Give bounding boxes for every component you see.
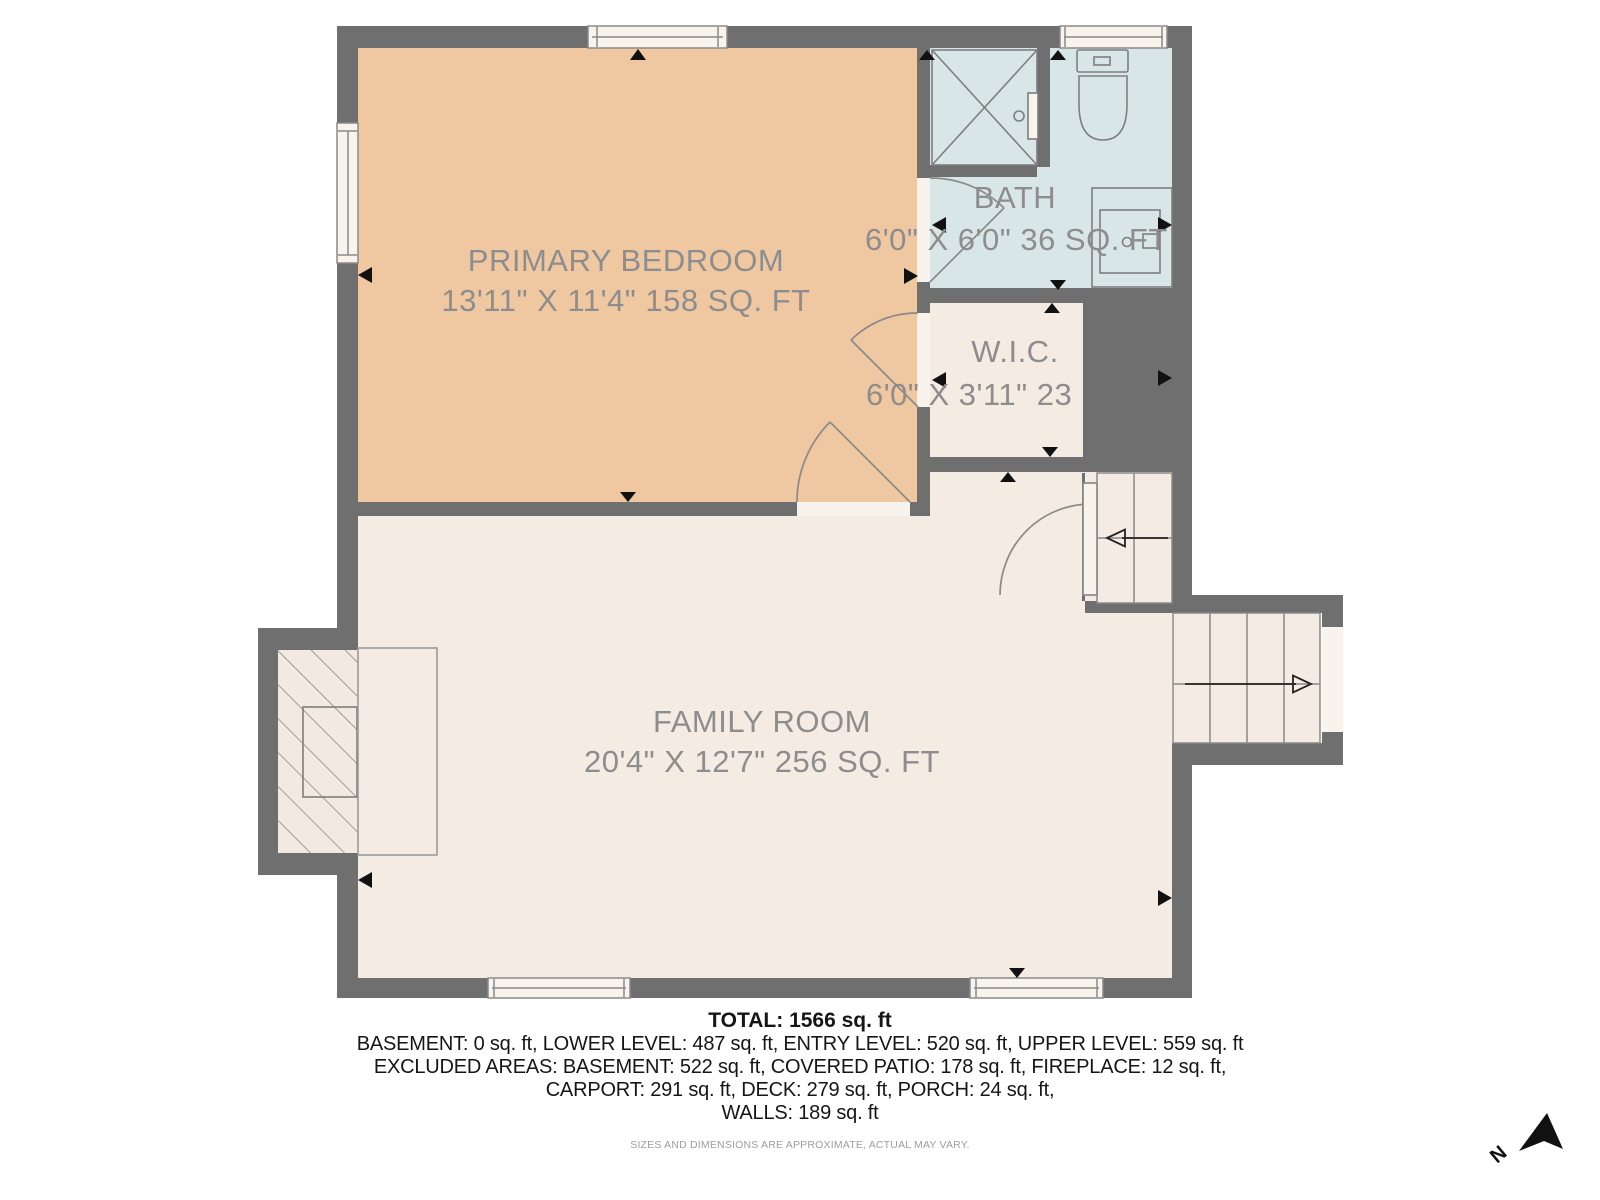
wall-fireplace [258,853,358,875]
area-summary: TOTAL: 1566 sq. ft BASEMENT: 0 sq. ft, L… [0,1008,1600,1151]
wall-lower-stairs-top [1192,595,1343,613]
excluded-area-3: WALLS: 189 sq. ft [0,1102,1600,1125]
bath-label: BATH [915,180,1115,216]
wall-fireplace [258,628,358,650]
wall-block-right-of-wic [1083,288,1192,472]
wall-left [337,48,358,123]
wall-shower-divider [1037,48,1050,167]
stairs-up-icon [1097,473,1172,603]
wall-right [1172,743,1192,998]
stairs-exit-opening [1322,627,1343,732]
family-room-dims: 20'4" X 12'7" 256 SQ. FT [512,744,1012,780]
wic-dims: 6'0" X 3'11" 23 SQ. FT [866,377,1083,413]
levels-area: BASEMENT: 0 sq. ft, LOWER LEVEL: 487 sq.… [0,1033,1600,1056]
vestibule-door-leaf [1083,483,1097,595]
shower-door [1028,93,1038,139]
wic-label: W.I.C. [915,334,1115,370]
wall-lower-stairs-right [1322,595,1343,627]
disclaimer-text: SIZES AND DIMENSIONS ARE APPROXIMATE, AC… [0,1139,1600,1151]
wall-left [337,855,358,998]
wall-wic-bottom [917,457,1083,472]
excluded-area-2: CARPORT: 291 sq. ft, DECK: 279 sq. ft, P… [0,1079,1600,1102]
bath-dims: 6'0" X 6'0" 36 SQ. FT [865,222,1165,258]
wall-shower-bottom [917,165,1037,177]
family-room-label: FAMILY ROOM [562,704,962,740]
primary-bedroom-label: PRIMARY BEDROOM [376,243,876,279]
wall-left [337,263,358,648]
wall-bath-bottom [917,288,1083,303]
fireplace-icon [278,648,437,855]
wall-fireplace [258,628,278,875]
bedroom-door-opening [797,502,910,516]
hearth [358,648,437,855]
wall-lower-stairs-bottom [1172,743,1343,765]
total-area: TOTAL: 1566 sq. ft [0,1008,1600,1033]
primary-bedroom-dims: 13'11" X 11'4" 158 SQ. FT [376,283,876,319]
floor-plan-canvas: N PRIMARY BEDROOM 13'11" X 11'4" 158 SQ.… [0,0,1600,1200]
wic-dims-clip: 6'0" X 3'11" 23 SQ. FT [790,377,1083,417]
wall-lower-stairs-right [1322,732,1343,765]
stairs-down-icon [1173,613,1320,743]
excluded-area-1: EXCLUDED AREAS: BASEMENT: 522 sq. ft, CO… [0,1056,1600,1079]
